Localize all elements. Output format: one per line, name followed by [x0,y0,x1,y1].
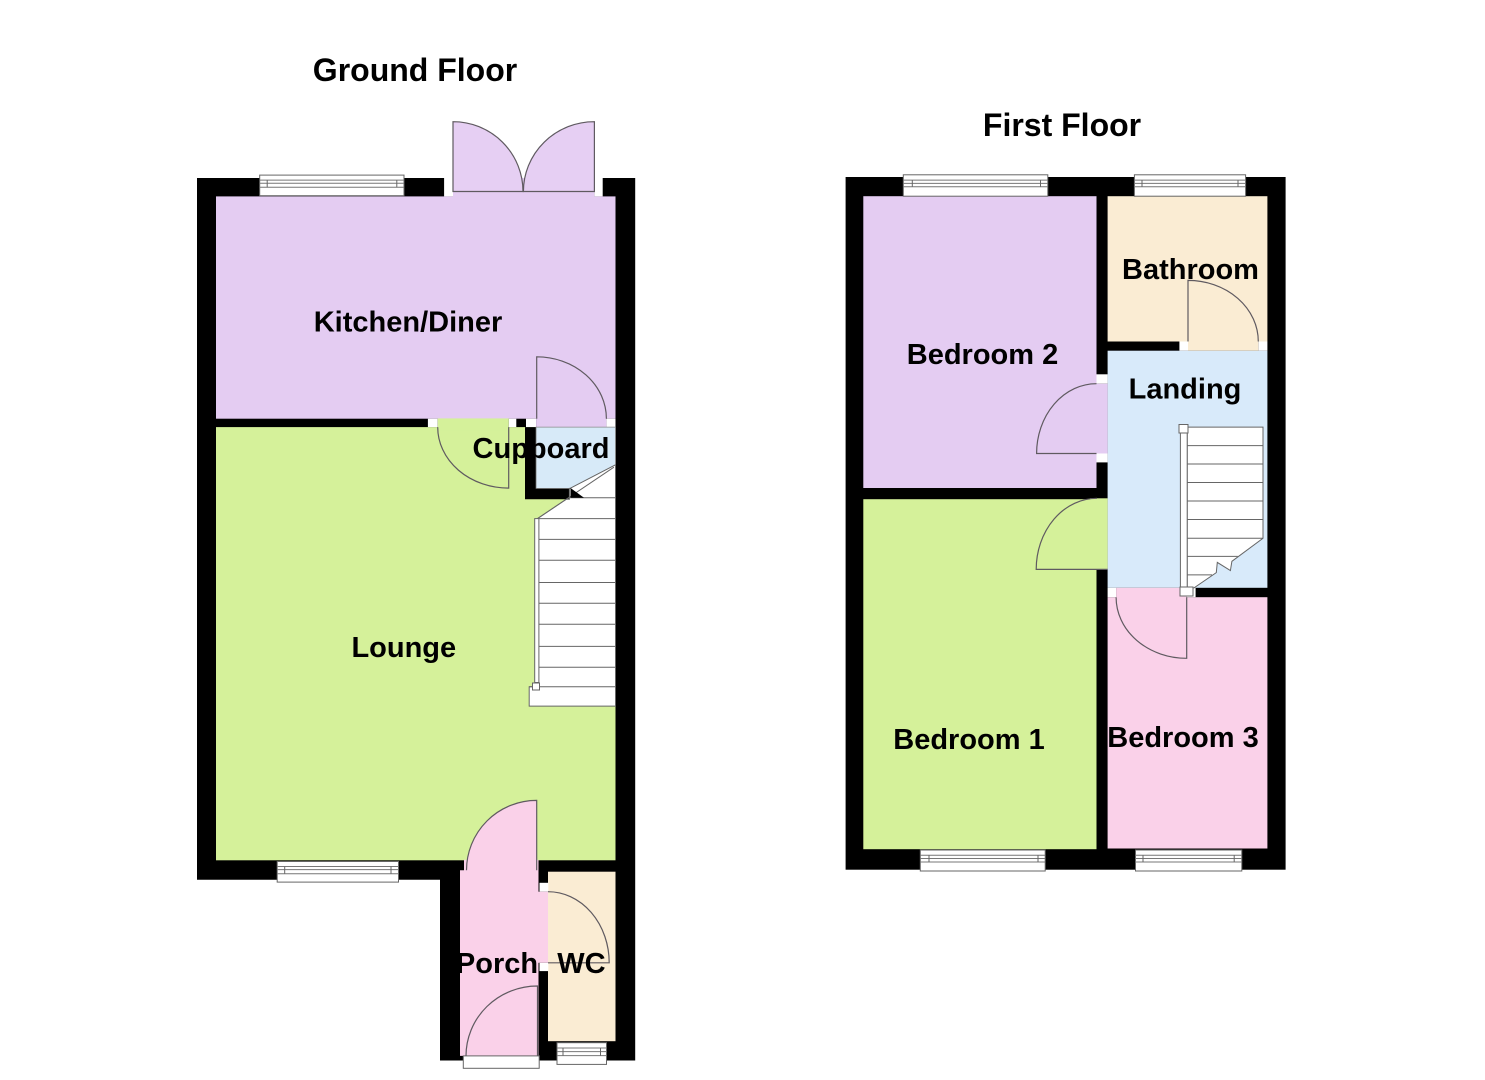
svg-text:Porch: Porch [456,948,538,980]
svg-text:Cupboard: Cupboard [473,433,610,465]
svg-text:Kitchen/Diner: Kitchen/Diner [314,307,503,339]
svg-text:Bathroom: Bathroom [1122,254,1259,286]
svg-text:First Floor: First Floor [983,107,1141,143]
svg-text:Bedroom 2: Bedroom 2 [907,339,1058,371]
svg-text:Ground Floor: Ground Floor [313,52,517,88]
svg-text:Landing: Landing [1129,374,1242,406]
svg-text:Bedroom 3: Bedroom 3 [1107,722,1258,754]
svg-text:Bedroom 1: Bedroom 1 [893,724,1044,756]
svg-text:WC: WC [557,948,605,980]
svg-text:Lounge: Lounge [351,632,456,664]
